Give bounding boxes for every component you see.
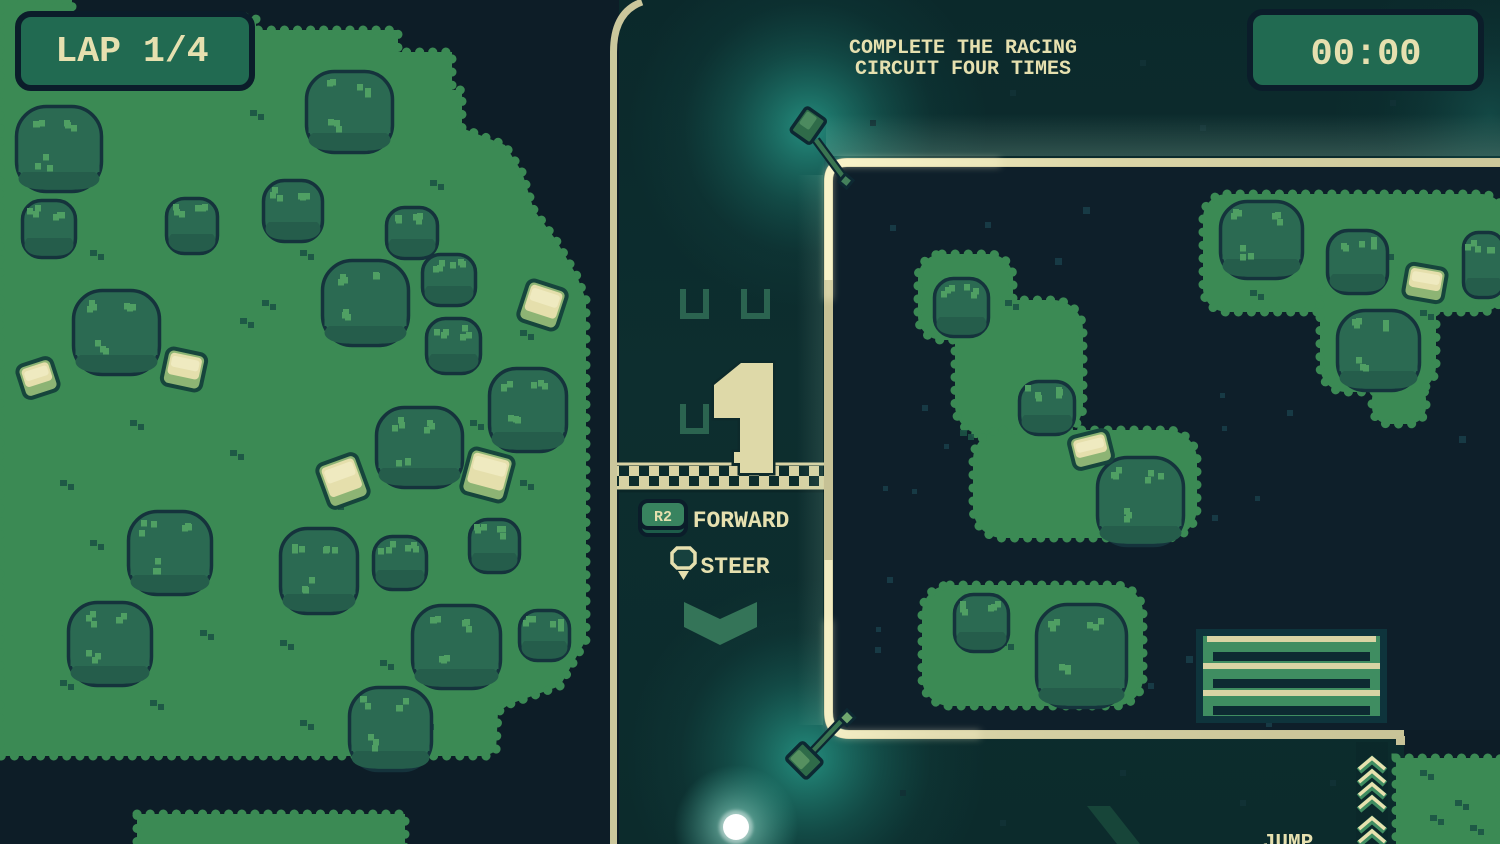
svg-text:00:00: 00:00 — [1310, 34, 1421, 76]
svg-text:COMPLETE THE RACING: COMPLETE THE RACING — [849, 37, 1077, 60]
svg-text:JUMP: JUMP — [1263, 832, 1313, 844]
svg-text:STEER: STEER — [700, 554, 769, 580]
svg-text:LAP 1/4: LAP 1/4 — [55, 31, 208, 72]
svg-text:FORWARD: FORWARD — [693, 508, 790, 534]
svg-text:R2: R2 — [654, 509, 672, 526]
svg-text:CIRCUIT FOUR TIMES: CIRCUIT FOUR TIMES — [855, 58, 1071, 81]
